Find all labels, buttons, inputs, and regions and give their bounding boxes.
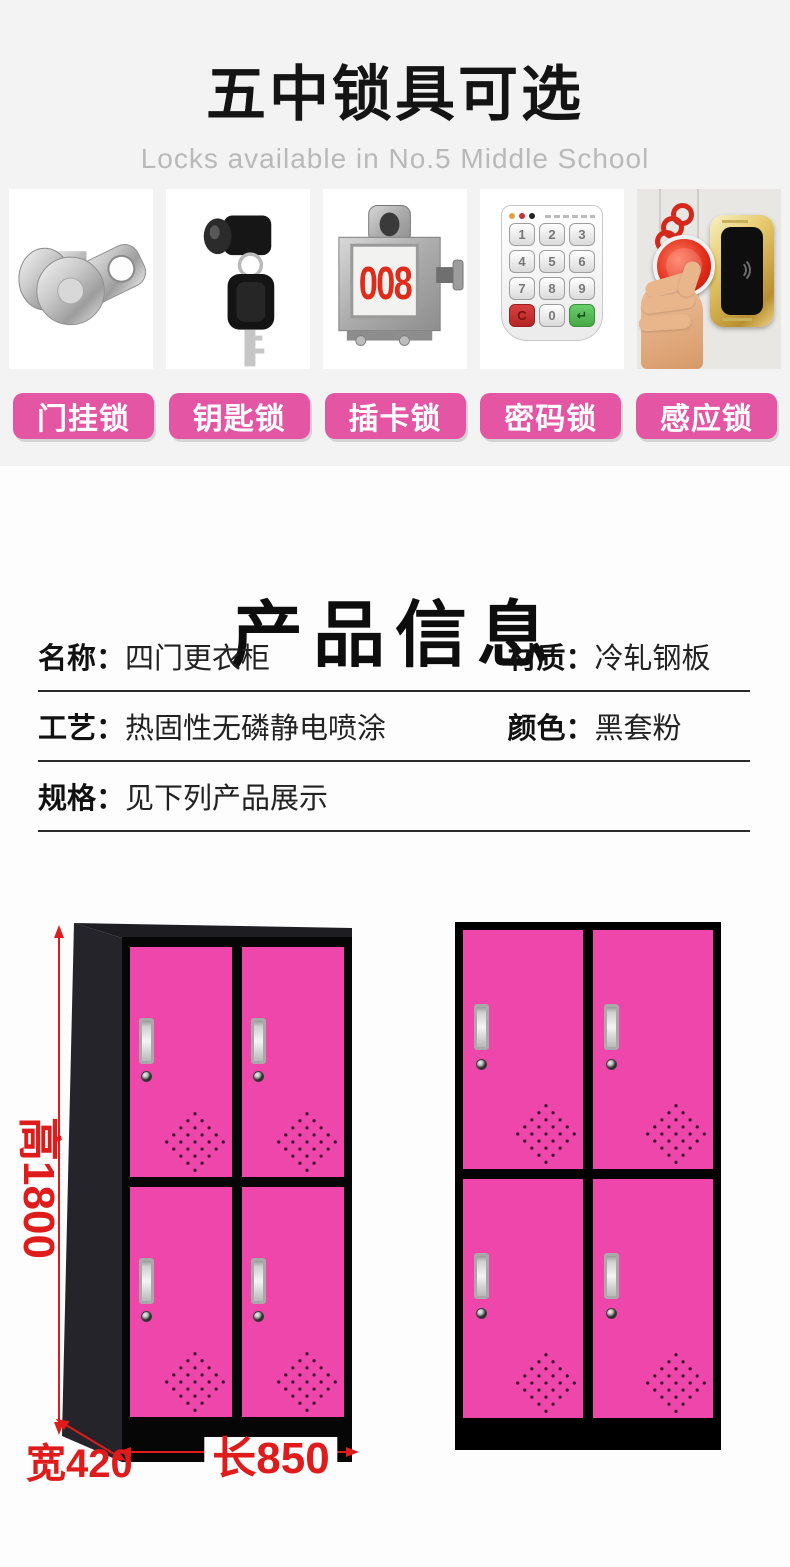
width-dimension-label: 宽420 bbox=[26, 1444, 133, 1484]
keyhole-icon bbox=[606, 1059, 617, 1070]
locker-front-face bbox=[122, 937, 352, 1462]
wifi-icon bbox=[725, 257, 751, 283]
cam-lock-icon bbox=[9, 189, 153, 369]
vent-holes-icon bbox=[160, 1347, 231, 1418]
spec-row: 规格： 见下列产品展示 bbox=[38, 762, 750, 832]
spec-row: 名称： 四门更衣柜 材质： 冷轧钢板 bbox=[38, 622, 750, 692]
led-yellow-icon bbox=[509, 213, 515, 219]
led-black-icon bbox=[529, 213, 535, 219]
door-handle bbox=[474, 1253, 489, 1299]
vent-holes-icon bbox=[511, 1348, 582, 1419]
keypad-key-4: 4 bbox=[509, 250, 535, 273]
led-red-icon bbox=[519, 213, 525, 219]
keypad-key-9: 9 bbox=[569, 277, 595, 300]
vent-holes-icon bbox=[272, 1347, 343, 1418]
spec-table: 名称： 四门更衣柜 材质： 冷轧钢板 工艺： 热固性无磷静电喷涂 颜色： 黑套粉… bbox=[38, 622, 750, 832]
locker-front-view bbox=[455, 922, 721, 1450]
spec-value: 热固性无磷静电喷涂 bbox=[125, 705, 386, 747]
door-handle bbox=[139, 1018, 154, 1064]
reader-label bbox=[722, 318, 752, 321]
keypad-key-1: 1 bbox=[509, 223, 535, 246]
spec-process: 工艺： 热固性无磷静电喷涂 bbox=[38, 705, 479, 747]
vent-holes-icon bbox=[272, 1107, 343, 1178]
rfid-lock-image bbox=[637, 189, 781, 369]
page-title: 五中锁具可选 bbox=[0, 46, 790, 133]
spec-label: 工艺： bbox=[38, 705, 125, 747]
spec-label: 颜色： bbox=[507, 705, 594, 747]
spec-value: 冷轧钢板 bbox=[594, 635, 710, 677]
lock-type-button-key[interactable]: 钥匙锁 bbox=[169, 393, 310, 439]
vent-holes-icon bbox=[641, 1348, 712, 1419]
keypad-key-2: 2 bbox=[539, 223, 565, 246]
locks-section: 五中锁具可选 Locks available in No.5 Middle Sc… bbox=[0, 0, 790, 466]
locker-door bbox=[130, 1187, 232, 1417]
door-handle bbox=[474, 1004, 489, 1050]
lock-type-button-card[interactable]: 插卡锁 bbox=[325, 393, 466, 439]
spec-color: 颜色： 黑套粉 bbox=[479, 705, 750, 747]
reader-face bbox=[721, 227, 763, 315]
locker-door bbox=[130, 947, 232, 1177]
key-lock-image bbox=[166, 189, 310, 369]
keyhole-icon bbox=[606, 1308, 617, 1319]
vent-holes-icon bbox=[641, 1099, 712, 1170]
spec-size: 规格： 见下列产品展示 bbox=[38, 775, 479, 817]
keypad-grid: 1 2 3 4 5 6 7 8 9 C 0 ↵ bbox=[509, 223, 595, 327]
door-handle bbox=[604, 1004, 619, 1050]
keypad-key-5: 5 bbox=[539, 250, 565, 273]
keyhole-icon bbox=[141, 1311, 152, 1322]
rfid-photo bbox=[637, 189, 781, 369]
keypad-lock-image: 1 2 3 4 5 6 7 8 9 C 0 ↵ bbox=[480, 189, 624, 369]
spec-value: 四门更衣柜 bbox=[125, 635, 270, 677]
lock-type-button-password[interactable]: 密码锁 bbox=[480, 393, 621, 439]
keyhole-icon bbox=[253, 1311, 264, 1322]
keypad-key-0: 0 bbox=[539, 304, 565, 327]
vent-holes-icon bbox=[511, 1099, 582, 1170]
locker-door bbox=[242, 1187, 344, 1417]
key-lock-icon bbox=[166, 189, 310, 369]
keypad-key-enter: ↵ bbox=[569, 304, 595, 327]
keyhole-icon bbox=[141, 1071, 152, 1082]
keyhole-icon bbox=[476, 1059, 487, 1070]
lock-type-button-padlock[interactable]: 门挂锁 bbox=[13, 393, 154, 439]
page-subtitle: Locks available in No.5 Middle School bbox=[0, 143, 790, 175]
door-handle bbox=[251, 1018, 266, 1064]
keypad-key-8: 8 bbox=[539, 277, 565, 300]
cam-lock-image bbox=[9, 189, 153, 369]
spec-label: 规格： bbox=[38, 775, 125, 817]
locker-perspective-view bbox=[58, 920, 356, 1468]
card-lock-number: 008 bbox=[361, 249, 410, 317]
keyhole-icon bbox=[476, 1308, 487, 1319]
keypad-key-clear: C bbox=[509, 304, 535, 327]
keyhole-icon bbox=[253, 1071, 264, 1082]
spec-value: 见下列产品展示 bbox=[125, 775, 328, 817]
locker-door bbox=[242, 947, 344, 1177]
keypad-key-7: 7 bbox=[509, 277, 535, 300]
lock-type-buttons: 门挂锁 钥匙锁 插卡锁 密码锁 感应锁 bbox=[0, 393, 790, 439]
lock-images-row: 008 1 2 3 4 5 bbox=[0, 189, 790, 369]
spec-row: 工艺： 热固性无磷静电喷涂 颜色： 黑套粉 bbox=[38, 692, 750, 762]
spec-value: 黑套粉 bbox=[594, 705, 681, 747]
vent-holes-icon bbox=[160, 1107, 231, 1178]
card-lock-image: 008 bbox=[323, 189, 467, 369]
door-handle bbox=[251, 1258, 266, 1304]
gold-rfid-reader bbox=[710, 215, 774, 327]
locker-door bbox=[593, 930, 713, 1169]
length-dimension-label: 长850 bbox=[204, 1437, 337, 1481]
height-dimension-label: 高1800 bbox=[16, 1117, 60, 1259]
reader-label bbox=[722, 220, 748, 223]
keypad-fine-print bbox=[545, 215, 595, 218]
spec-label: 名称： bbox=[38, 635, 125, 677]
keypad-key-6: 6 bbox=[569, 250, 595, 273]
keypad-leds bbox=[509, 212, 595, 220]
door-handle bbox=[139, 1258, 154, 1304]
lock-type-button-induction[interactable]: 感应锁 bbox=[636, 393, 777, 439]
spec-label: 材质： bbox=[507, 635, 594, 677]
locker-door bbox=[463, 1179, 583, 1418]
product-page: 五中锁具可选 Locks available in No.5 Middle Sc… bbox=[0, 0, 790, 1567]
keypad-device: 1 2 3 4 5 6 7 8 9 C 0 ↵ bbox=[501, 205, 603, 341]
door-handle bbox=[604, 1253, 619, 1299]
locker-door bbox=[593, 1179, 713, 1418]
spec-name: 名称： 四门更衣柜 bbox=[38, 635, 479, 677]
locker-door bbox=[463, 930, 583, 1169]
keypad-key-3: 3 bbox=[569, 223, 595, 246]
spec-material: 材质： 冷轧钢板 bbox=[479, 635, 750, 677]
